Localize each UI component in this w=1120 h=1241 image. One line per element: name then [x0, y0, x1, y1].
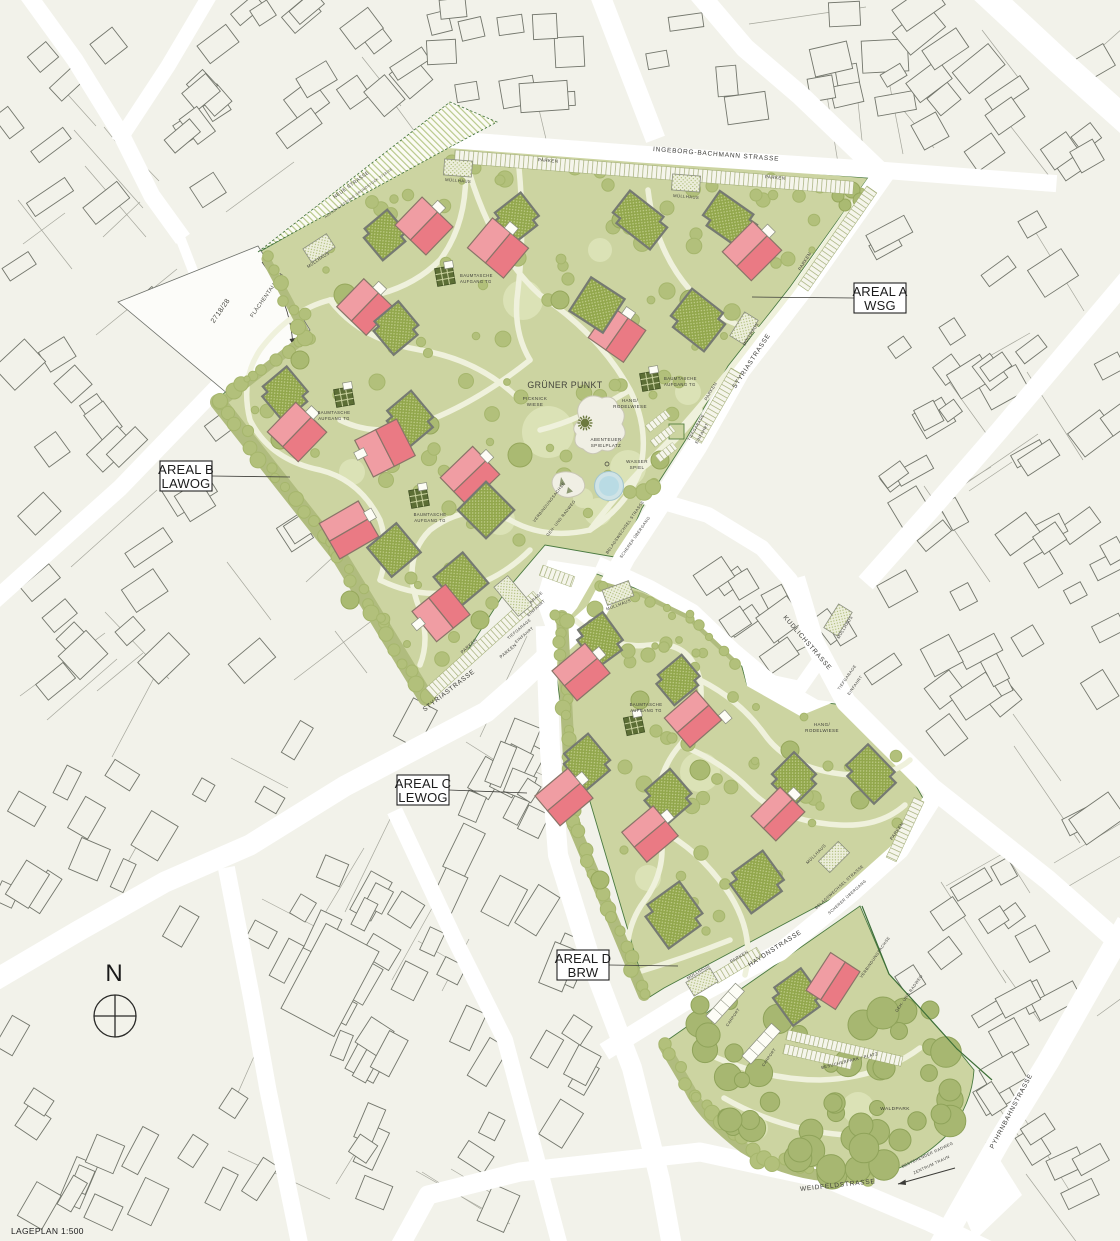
svg-text:HANG/: HANG/ [622, 398, 639, 403]
svg-text:HANG/: HANG/ [814, 722, 831, 727]
svg-text:WSG: WSG [864, 298, 896, 313]
svg-text:BAUMTASCHE: BAUMTASCHE [318, 410, 351, 415]
svg-text:AUFGANG TG: AUFGANG TG [664, 382, 696, 387]
svg-text:AREAL D: AREAL D [555, 951, 612, 966]
svg-text:WALDPARK: WALDPARK [880, 1106, 910, 1112]
svg-text:N: N [105, 960, 122, 987]
svg-text:SPIELPLATZ: SPIELPLATZ [591, 443, 621, 448]
svg-text:AREAL B: AREAL B [158, 462, 214, 477]
svg-text:BAUMTASCHE: BAUMTASCHE [460, 273, 493, 278]
svg-text:AUFGANG TG: AUFGANG TG [460, 279, 492, 284]
svg-text:AUFGANG TG: AUFGANG TG [318, 416, 350, 421]
svg-text:GRÜNER PUNKT: GRÜNER PUNKT [527, 380, 602, 390]
svg-text:SPIEL: SPIEL [630, 465, 645, 470]
svg-text:BAUMTASCHE: BAUMTASCHE [630, 702, 663, 707]
svg-text:AUFGANG TG: AUFGANG TG [414, 518, 446, 523]
svg-text:LAGEPLAN: LAGEPLAN [11, 1226, 58, 1236]
svg-text:LEWOG: LEWOG [398, 790, 447, 805]
svg-text:AREAL C: AREAL C [395, 776, 452, 791]
svg-text:RODELWIESE: RODELWIESE [805, 728, 839, 733]
svg-text:AREAL A: AREAL A [852, 284, 907, 299]
svg-text:ABENTEUER: ABENTEUER [590, 437, 621, 442]
svg-text:AUFGANG TG: AUFGANG TG [630, 708, 662, 713]
svg-text:RODELWIESE: RODELWIESE [613, 404, 647, 409]
svg-text:WASSER: WASSER [626, 459, 648, 464]
svg-text:WIESE: WIESE [527, 402, 544, 407]
svg-text:PICKNICK: PICKNICK [523, 396, 547, 401]
svg-text:1:500: 1:500 [61, 1226, 84, 1236]
svg-text:BRW: BRW [568, 965, 599, 980]
svg-text:BAUMTASCHE: BAUMTASCHE [414, 512, 447, 517]
svg-text:BAUMTASCHE: BAUMTASCHE [664, 376, 697, 381]
svg-text:LAWOG: LAWOG [162, 476, 211, 491]
